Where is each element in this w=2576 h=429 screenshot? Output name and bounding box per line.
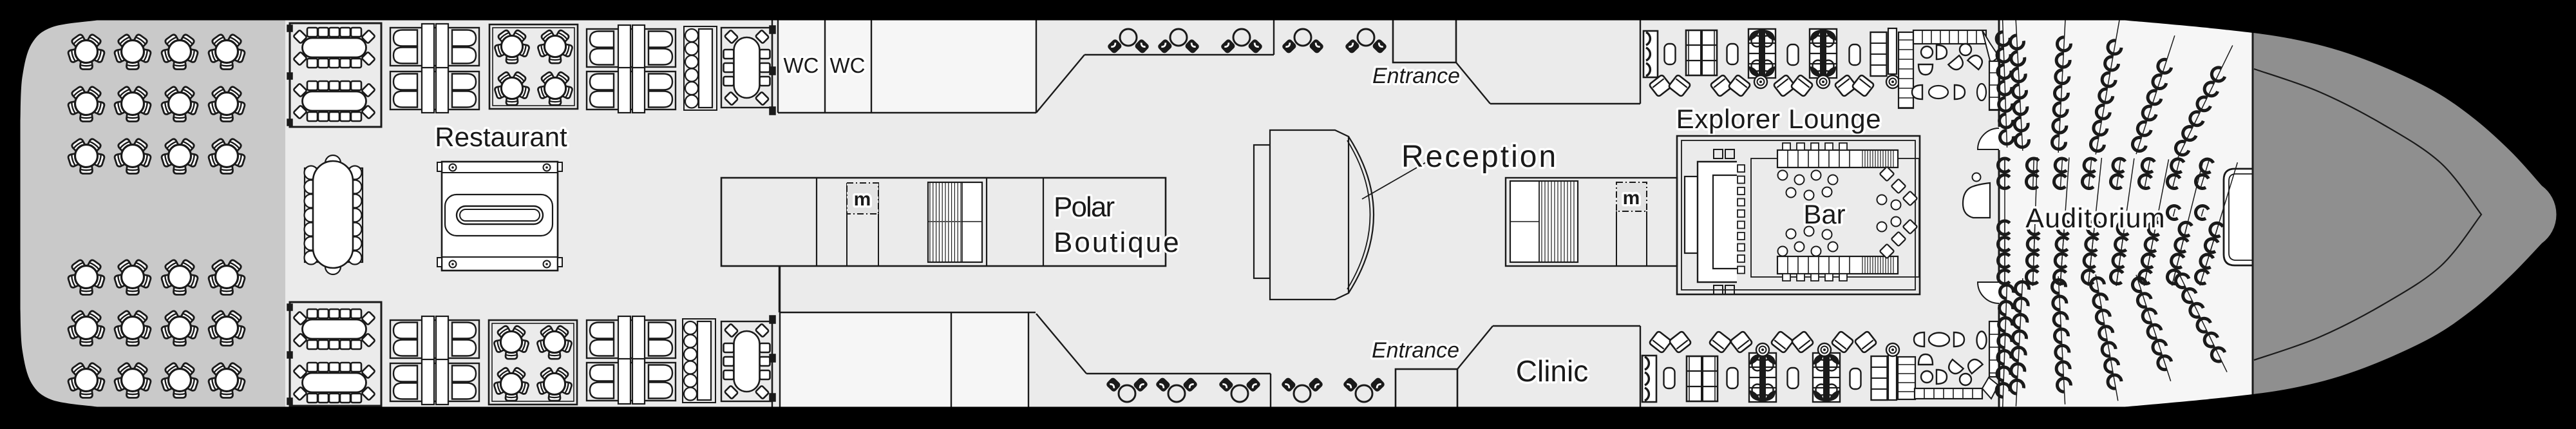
svg-text:Explorer Lounge: Explorer Lounge [1676, 104, 1882, 134]
svg-text:Clinic: Clinic [1516, 354, 1588, 388]
svg-text:Entrance: Entrance [1372, 64, 1460, 88]
svg-text:WC: WC [784, 53, 819, 77]
svg-text:WC: WC [830, 53, 866, 77]
svg-text:Entrance: Entrance [1372, 338, 1459, 363]
svg-text:m: m [854, 189, 871, 210]
svg-text:m: m [1623, 187, 1640, 209]
svg-text:Reception: Reception [1401, 140, 1558, 174]
svg-text:Boutique: Boutique [1054, 227, 1181, 258]
svg-text:Bar: Bar [1803, 199, 1845, 229]
svg-text:Polar: Polar [1054, 191, 1114, 223]
svg-text:Restaurant: Restaurant [435, 122, 567, 152]
svg-text:Auditorium: Auditorium [2025, 203, 2166, 234]
